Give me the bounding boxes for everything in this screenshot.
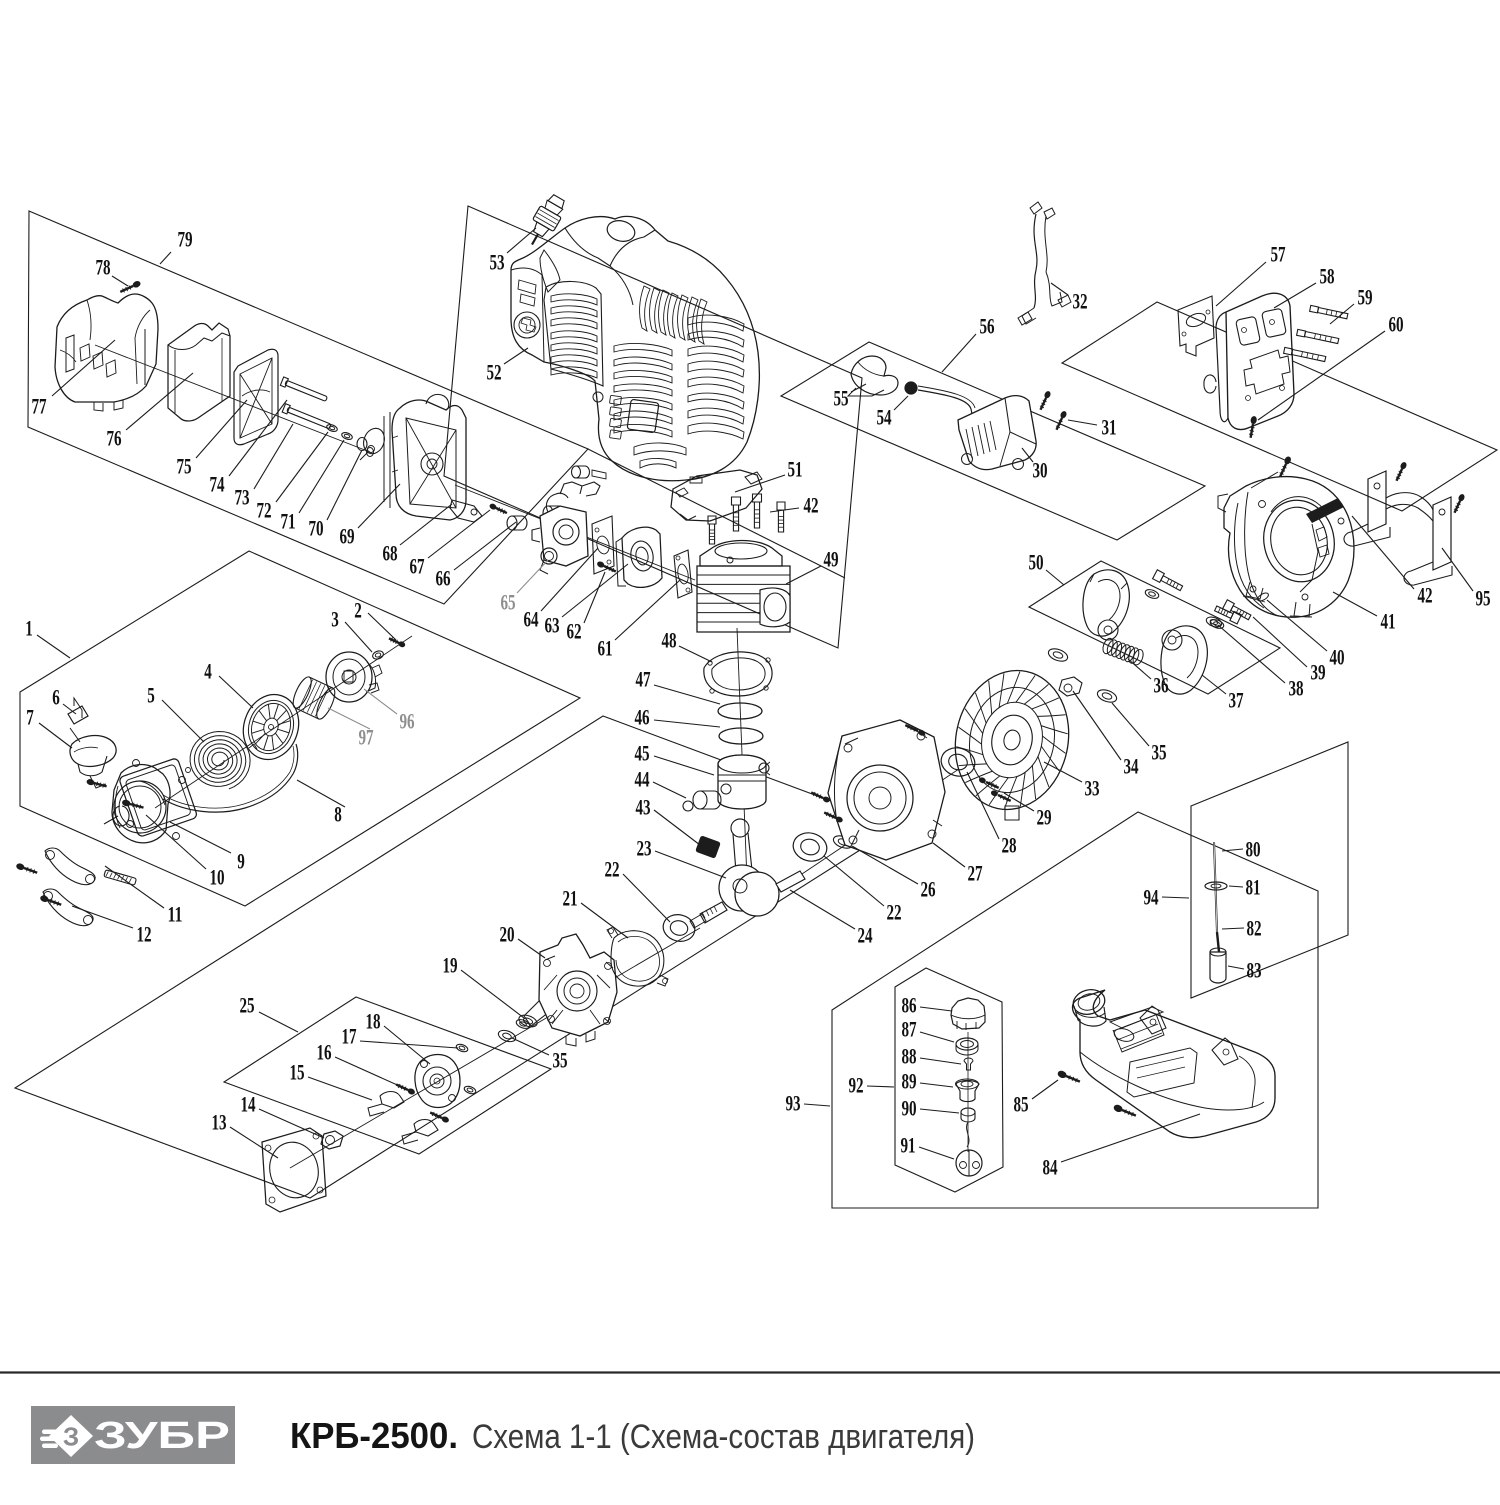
svg-text:66: 66: [435, 566, 450, 591]
svg-text:58: 58: [1319, 264, 1334, 289]
svg-text:44: 44: [634, 767, 649, 792]
svg-text:55: 55: [833, 386, 848, 411]
svg-text:32: 32: [1072, 289, 1087, 314]
svg-text:59: 59: [1357, 285, 1372, 310]
svg-text:52: 52: [486, 360, 501, 385]
svg-text:92: 92: [848, 1073, 863, 1098]
svg-text:68: 68: [382, 541, 397, 566]
svg-text:15: 15: [289, 1060, 304, 1085]
svg-text:35: 35: [1151, 740, 1166, 765]
svg-text:42: 42: [1417, 583, 1432, 608]
svg-text:22: 22: [886, 900, 901, 925]
svg-text:91: 91: [900, 1133, 915, 1158]
svg-text:89: 89: [901, 1069, 916, 1094]
svg-text:10: 10: [209, 865, 224, 890]
svg-text:43: 43: [635, 795, 650, 820]
svg-text:26: 26: [920, 877, 935, 902]
svg-text:82: 82: [1246, 916, 1261, 941]
svg-text:56: 56: [979, 314, 994, 339]
svg-text:11: 11: [167, 902, 182, 927]
svg-text:96: 96: [399, 709, 414, 734]
svg-text:53: 53: [489, 250, 504, 275]
svg-text:7: 7: [26, 705, 34, 730]
svg-text:31: 31: [1101, 415, 1116, 440]
svg-text:71: 71: [280, 509, 295, 534]
svg-text:77: 77: [31, 394, 46, 419]
svg-text:86: 86: [901, 993, 916, 1018]
svg-text:5: 5: [147, 683, 155, 708]
svg-text:29: 29: [1036, 805, 1051, 830]
svg-text:35: 35: [552, 1048, 567, 1073]
svg-text:27: 27: [967, 861, 982, 886]
svg-text:65: 65: [500, 590, 515, 615]
svg-text:95: 95: [1475, 586, 1490, 611]
svg-text:60: 60: [1388, 312, 1403, 337]
svg-text:19: 19: [442, 953, 457, 978]
svg-text:69: 69: [339, 524, 354, 549]
svg-text:8: 8: [334, 802, 342, 827]
svg-text:83: 83: [1246, 958, 1261, 983]
svg-text:97: 97: [358, 725, 373, 750]
svg-text:17: 17: [341, 1024, 356, 1049]
svg-text:54: 54: [876, 405, 891, 430]
svg-text:75: 75: [176, 454, 191, 479]
svg-text:2: 2: [354, 598, 362, 623]
svg-text:74: 74: [209, 472, 224, 497]
svg-text:78: 78: [95, 255, 110, 280]
svg-text:81: 81: [1245, 875, 1260, 900]
svg-text:28: 28: [1001, 833, 1016, 858]
svg-text:36: 36: [1153, 673, 1168, 698]
svg-text:61: 61: [597, 636, 612, 661]
svg-text:63: 63: [544, 613, 559, 638]
svg-text:72: 72: [256, 498, 271, 523]
svg-text:13: 13: [211, 1110, 226, 1135]
svg-text:КРБ-2500.: КРБ-2500.: [290, 1415, 458, 1456]
svg-text:37: 37: [1228, 688, 1243, 713]
svg-text:14: 14: [240, 1092, 255, 1117]
svg-text:39: 39: [1310, 660, 1325, 685]
svg-text:6: 6: [52, 685, 60, 710]
svg-text:20: 20: [499, 922, 514, 947]
svg-text:79: 79: [177, 227, 192, 252]
svg-text:1: 1: [25, 616, 33, 641]
svg-text:4: 4: [204, 659, 212, 684]
svg-text:51: 51: [787, 457, 802, 482]
svg-text:50: 50: [1028, 550, 1043, 575]
svg-text:90: 90: [901, 1096, 916, 1121]
svg-text:76: 76: [106, 426, 121, 451]
svg-text:84: 84: [1042, 1155, 1057, 1180]
svg-text:94: 94: [1143, 885, 1158, 910]
svg-text:87: 87: [901, 1017, 916, 1042]
svg-text:62: 62: [566, 619, 581, 644]
svg-text:9: 9: [237, 849, 245, 874]
svg-text:3: 3: [331, 607, 339, 632]
svg-text:73: 73: [234, 485, 249, 510]
svg-text:80: 80: [1245, 837, 1260, 862]
svg-text:30: 30: [1032, 458, 1047, 483]
svg-text:34: 34: [1123, 754, 1138, 779]
svg-text:47: 47: [635, 667, 650, 692]
svg-text:46: 46: [634, 705, 649, 730]
svg-text:24: 24: [857, 923, 872, 948]
svg-text:45: 45: [634, 741, 649, 766]
svg-text:23: 23: [636, 836, 651, 861]
svg-text:25: 25: [239, 993, 254, 1018]
svg-text:33: 33: [1084, 776, 1099, 801]
svg-text:40: 40: [1329, 645, 1344, 670]
svg-text:88: 88: [901, 1044, 916, 1069]
svg-text:38: 38: [1288, 676, 1303, 701]
svg-text:93: 93: [785, 1091, 800, 1116]
svg-text:18: 18: [365, 1009, 380, 1034]
svg-text:49: 49: [823, 547, 838, 572]
svg-text:70: 70: [308, 516, 323, 541]
svg-text:16: 16: [316, 1040, 331, 1065]
svg-text:41: 41: [1380, 609, 1395, 634]
svg-text:21: 21: [562, 886, 577, 911]
svg-text:ЗУБР: ЗУБР: [94, 1415, 230, 1457]
svg-text:З: З: [63, 1422, 79, 1452]
svg-text:48: 48: [661, 628, 676, 653]
svg-text:42: 42: [803, 493, 818, 518]
svg-text:67: 67: [409, 554, 424, 579]
svg-text:12: 12: [136, 922, 151, 947]
svg-text:Схема 1-1 (Схема-состав двигат: Схема 1-1 (Схема-состав двигателя): [472, 1418, 975, 1456]
svg-text:64: 64: [523, 607, 538, 632]
svg-text:85: 85: [1013, 1092, 1028, 1117]
svg-text:57: 57: [1270, 242, 1285, 267]
svg-text:22: 22: [604, 857, 619, 882]
